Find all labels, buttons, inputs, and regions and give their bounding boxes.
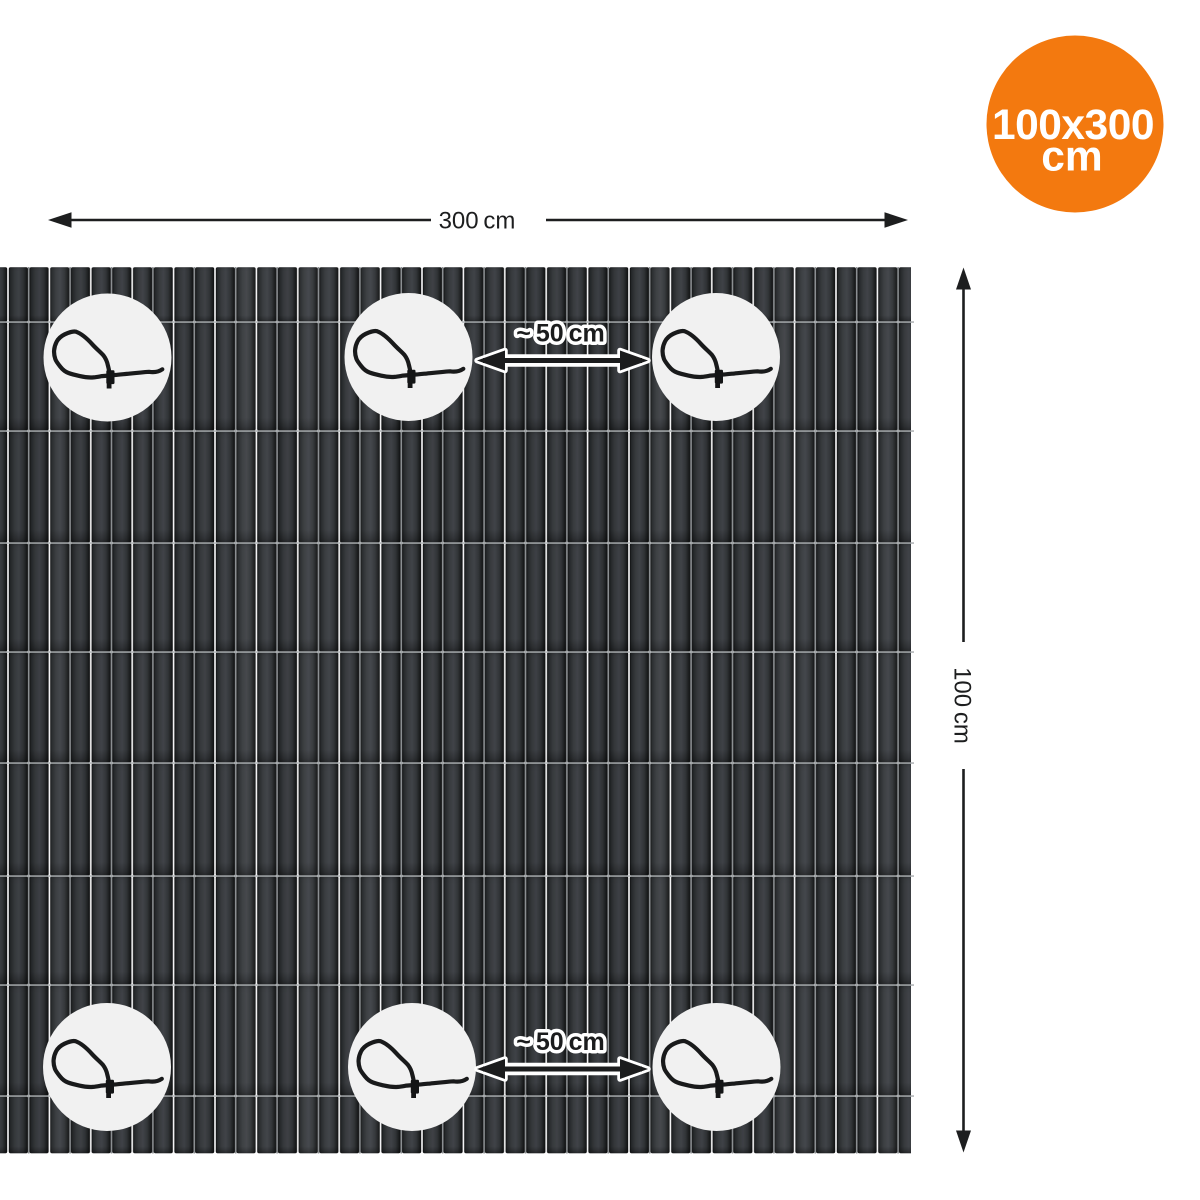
svg-text:cm: cm bbox=[1041, 134, 1102, 181]
svg-text:~ 50 cm: ~ 50 cm bbox=[516, 320, 605, 348]
svg-text:100 cm: 100 cm bbox=[949, 667, 976, 744]
svg-text:300 cm: 300 cm bbox=[439, 208, 516, 235]
svg-text:~ 50 cm: ~ 50 cm bbox=[516, 1028, 605, 1056]
